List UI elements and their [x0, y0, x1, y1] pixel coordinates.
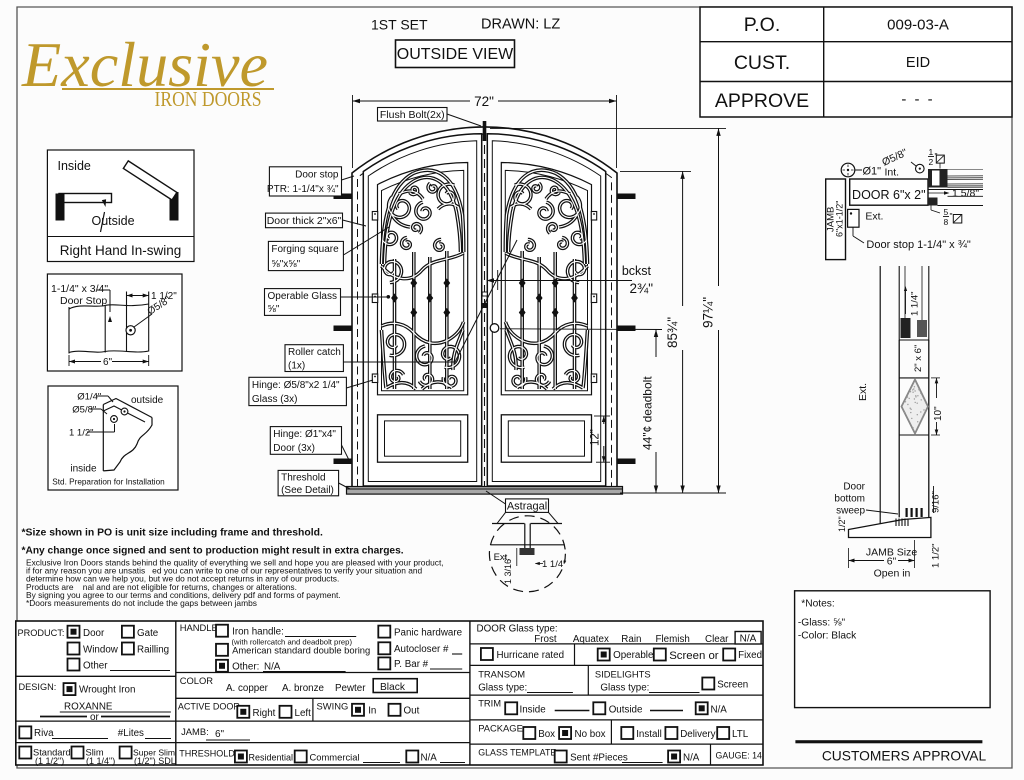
- svg-text:THRESHOLD: THRESHOLD: [179, 749, 235, 759]
- svg-text:Fixed: Fixed: [738, 650, 762, 661]
- svg-text:Gate: Gate: [137, 628, 159, 639]
- svg-text:COLOR: COLOR: [180, 675, 214, 686]
- svg-text:Frost: Frost: [534, 634, 557, 645]
- svg-text:LTL: LTL: [732, 729, 749, 740]
- svg-text:Door stop 1-1/4" x ¾": Door stop 1-1/4" x ¾": [866, 239, 971, 251]
- svg-text:Open in: Open in: [874, 568, 911, 580]
- svg-text:Wrought Iron: Wrought Iron: [79, 685, 135, 696]
- svg-text:Flush Bolt(2x): Flush Bolt(2x): [380, 109, 445, 121]
- svg-text:(1x): (1x): [288, 360, 305, 371]
- svg-text:Door: Door: [83, 628, 105, 639]
- svg-text:inside: inside: [70, 464, 97, 475]
- svg-text:PTR: 1-1/4"x ¾": PTR: 1-1/4"x ¾": [267, 184, 339, 195]
- svg-text:N/A: N/A: [740, 634, 757, 645]
- svg-text:1 5/8": 1 5/8": [952, 188, 979, 200]
- svg-text:(See Detail): (See Detail): [281, 485, 334, 496]
- svg-text:2" x 6": 2" x 6": [913, 345, 924, 372]
- svg-text:85¾": 85¾": [665, 317, 680, 348]
- svg-text:Box: Box: [538, 729, 555, 740]
- svg-text:72": 72": [474, 94, 494, 109]
- svg-text:Hinge: Ø5/8"x2 1/4": Hinge: Ø5/8"x2 1/4": [252, 380, 340, 391]
- svg-text:Glass type:: Glass type:: [600, 683, 649, 694]
- svg-text:#Lites: #Lites: [118, 728, 144, 739]
- svg-text:Ø5/8": Ø5/8": [72, 405, 96, 416]
- svg-text:P.O.: P.O.: [744, 14, 781, 36]
- svg-text:6": 6": [887, 556, 897, 568]
- svg-text:Door thick 2"x6": Door thick 2"x6": [267, 215, 342, 227]
- svg-text:Door (3x): Door (3x): [273, 443, 315, 454]
- svg-text:Outside: Outside: [609, 705, 643, 716]
- svg-text:Door Stop: Door Stop: [60, 295, 107, 307]
- svg-text:1 3/16": 1 3/16": [503, 556, 513, 584]
- svg-text:12": 12": [590, 429, 602, 446]
- svg-text:2: 2: [929, 157, 934, 167]
- svg-text:DOOR Glass type:: DOOR Glass type:: [477, 624, 558, 635]
- svg-text:6": 6": [103, 357, 113, 368]
- svg-text:Flemish: Flemish: [656, 634, 690, 645]
- svg-text:Commercial: Commercial: [310, 752, 360, 763]
- svg-text:Hurricane rated: Hurricane rated: [497, 650, 565, 661]
- svg-text:GLASS TEMPLATE: GLASS TEMPLATE: [478, 748, 556, 758]
- svg-text:Door stop: Door stop: [295, 170, 339, 181]
- svg-text:8: 8: [944, 217, 949, 227]
- svg-text:-Glass: ⅝": -Glass: ⅝": [798, 618, 846, 629]
- svg-text:bottom: bottom: [834, 494, 865, 505]
- svg-text:SWING: SWING: [317, 701, 349, 712]
- svg-text:Threshold: Threshold: [281, 472, 325, 483]
- svg-text:-Color: Black: -Color: Black: [798, 631, 857, 642]
- svg-text:*Notes:: *Notes:: [801, 599, 834, 610]
- svg-text:P. Bar #: P. Bar #: [394, 659, 429, 670]
- svg-text:CUSTOMERS APPROVAL: CUSTOMERS APPROVAL: [822, 749, 987, 764]
- svg-text:Hinge: Ø1"x4": Hinge: Ø1"x4": [273, 429, 336, 440]
- svg-text:Forging square: Forging square: [271, 244, 339, 255]
- svg-text:Delivery: Delivery: [680, 729, 715, 740]
- svg-text:A. copper: A. copper: [226, 683, 269, 694]
- svg-text:bckst: bckst: [622, 264, 652, 278]
- svg-text:JAMB:: JAMB:: [181, 726, 209, 737]
- svg-text:Inside: Inside: [58, 159, 91, 173]
- svg-text:1 1/2": 1 1/2": [69, 428, 94, 439]
- svg-text:SIDELIGHTS: SIDELIGHTS: [595, 669, 651, 680]
- svg-text:GAUGE: 14: GAUGE: 14: [716, 751, 763, 761]
- svg-text:N/A: N/A: [421, 753, 438, 764]
- svg-text:Inside: Inside: [520, 705, 547, 716]
- svg-text:CUST.: CUST.: [734, 52, 790, 74]
- svg-text:44"¢ deadbolt: 44"¢ deadbolt: [641, 376, 655, 450]
- svg-text:(1 1/2"): (1 1/2"): [35, 756, 64, 766]
- svg-text:N/A: N/A: [711, 705, 728, 716]
- svg-text:sweep: sweep: [836, 506, 865, 517]
- svg-text:Roller catch: Roller catch: [288, 347, 341, 358]
- svg-text:Glass type:: Glass type:: [478, 683, 527, 694]
- svg-text:PACKAGE: PACKAGE: [478, 723, 523, 734]
- svg-text:ACTIVE DOOR: ACTIVE DOOR: [178, 702, 241, 712]
- svg-text:(1 1/4"): (1 1/4"): [86, 756, 115, 766]
- svg-text:Other: Other: [83, 661, 108, 672]
- svg-text:In: In: [368, 706, 376, 717]
- svg-text:⅝": ⅝": [268, 304, 280, 315]
- svg-text:N/A: N/A: [683, 753, 700, 764]
- svg-text:TRANSOM: TRANSOM: [478, 669, 525, 680]
- svg-text:5: 5: [944, 207, 949, 217]
- svg-text:Ø1": Ø1": [863, 166, 882, 178]
- svg-text:APPROVE: APPROVE: [715, 90, 809, 112]
- svg-text:1 1/4": 1 1/4": [910, 291, 921, 316]
- svg-text:A. bronze: A. bronze: [282, 683, 324, 694]
- svg-text:9/16": 9/16": [931, 491, 942, 513]
- svg-text:*Size shown in PO is unit size: *Size shown in PO is unit size including…: [22, 528, 323, 539]
- svg-text:Int.: Int.: [885, 167, 900, 179]
- svg-text:DRAWN: LZ: DRAWN: LZ: [481, 17, 560, 33]
- svg-text:Ext.: Ext.: [857, 383, 869, 401]
- svg-text:1: 1: [929, 147, 934, 157]
- svg-text:*Doors measurements do not inc: *Doors measurements do not include the g…: [26, 598, 257, 608]
- svg-text:Iron handle:: Iron handle:: [232, 627, 284, 638]
- svg-text:American standard double borin: American standard double boring: [232, 645, 370, 656]
- svg-text:Panic hardware: Panic hardware: [394, 627, 463, 638]
- svg-text:Operable Glass: Operable Glass: [268, 291, 337, 302]
- svg-text:Operable: Operable: [613, 650, 654, 661]
- svg-text:": ": [950, 211, 953, 221]
- svg-text:Clear: Clear: [705, 634, 729, 645]
- svg-text:DESIGN:: DESIGN:: [19, 682, 57, 692]
- svg-text:Window: Window: [83, 645, 119, 656]
- svg-text:Rain: Rain: [621, 634, 641, 645]
- svg-text:009-03-A: 009-03-A: [887, 17, 949, 34]
- svg-text:OUTSIDE VIEW: OUTSIDE VIEW: [397, 46, 514, 63]
- svg-text:PRODUCT:: PRODUCT:: [18, 628, 65, 638]
- svg-text:EID: EID: [906, 55, 930, 71]
- svg-text:Right: Right: [253, 708, 276, 719]
- svg-text:10": 10": [933, 406, 944, 421]
- svg-text:Residential: Residential: [249, 753, 294, 763]
- svg-text:Railling: Railling: [137, 645, 169, 656]
- svg-text:⅝"x⅝": ⅝"x⅝": [271, 259, 300, 270]
- svg-text:IRON DOORS: IRON DOORS: [155, 87, 262, 111]
- svg-text:Sent #Pieces: Sent #Pieces: [570, 753, 628, 764]
- svg-text:Right Hand In-swing: Right Hand In-swing: [60, 243, 182, 258]
- svg-text:Out: Out: [404, 706, 420, 717]
- svg-text:1ST SET: 1ST SET: [371, 17, 428, 33]
- svg-text:No box: No box: [575, 729, 606, 740]
- svg-text:Door: Door: [843, 482, 865, 493]
- svg-text:Autocloser #: Autocloser #: [394, 644, 449, 655]
- svg-text:TRIM: TRIM: [478, 698, 501, 709]
- svg-text:Glass (3x): Glass (3x): [252, 394, 298, 405]
- svg-text:Other:: Other:: [232, 662, 259, 673]
- svg-text:HANDLE: HANDLE: [180, 622, 218, 633]
- svg-text:Left: Left: [295, 708, 312, 719]
- svg-text:Astragal: Astragal: [507, 501, 547, 513]
- svg-text:1/2": 1/2": [837, 516, 847, 532]
- svg-text:97¼": 97¼": [701, 297, 716, 328]
- svg-text:2¾": 2¾": [629, 281, 653, 296]
- svg-text:1-1/4" x 3/4": 1-1/4" x 3/4": [51, 283, 108, 295]
- svg-text:ROXANNE: ROXANNE: [64, 702, 113, 713]
- svg-text:Riva: Riva: [34, 728, 54, 739]
- svg-text:N/A: N/A: [264, 662, 281, 673]
- svg-text:*Any change once signed and se: *Any change once signed and sent to prod…: [22, 546, 404, 557]
- svg-text:1 1/4": 1 1/4": [542, 559, 567, 570]
- svg-text:6": 6": [215, 729, 225, 740]
- svg-text:6"x1-1/2": 6"x1-1/2": [835, 201, 845, 237]
- svg-text:DOOR 6"x 2": DOOR 6"x 2": [852, 188, 925, 202]
- svg-text:Screen: Screen: [717, 680, 748, 691]
- svg-text:Std. Preparation for Installat: Std. Preparation for Installation: [52, 478, 165, 487]
- svg-text:Outside: Outside: [92, 214, 135, 228]
- svg-text:1 1/2": 1 1/2": [931, 543, 942, 568]
- svg-text:Aquatex: Aquatex: [573, 634, 609, 645]
- svg-text:Ext.: Ext.: [865, 211, 883, 223]
- svg-text:Pewter: Pewter: [335, 683, 366, 694]
- svg-text:Screen or: Screen or: [669, 650, 719, 662]
- svg-text:Ø1/4": Ø1/4": [77, 392, 101, 403]
- svg-text:or: or: [90, 712, 100, 723]
- svg-text:(1/2") SDL: (1/2") SDL: [134, 756, 176, 766]
- svg-text:- - -: - - -: [901, 91, 934, 108]
- svg-text:outside: outside: [131, 395, 164, 406]
- svg-text:Install: Install: [636, 729, 662, 740]
- svg-text:Black: Black: [380, 682, 406, 693]
